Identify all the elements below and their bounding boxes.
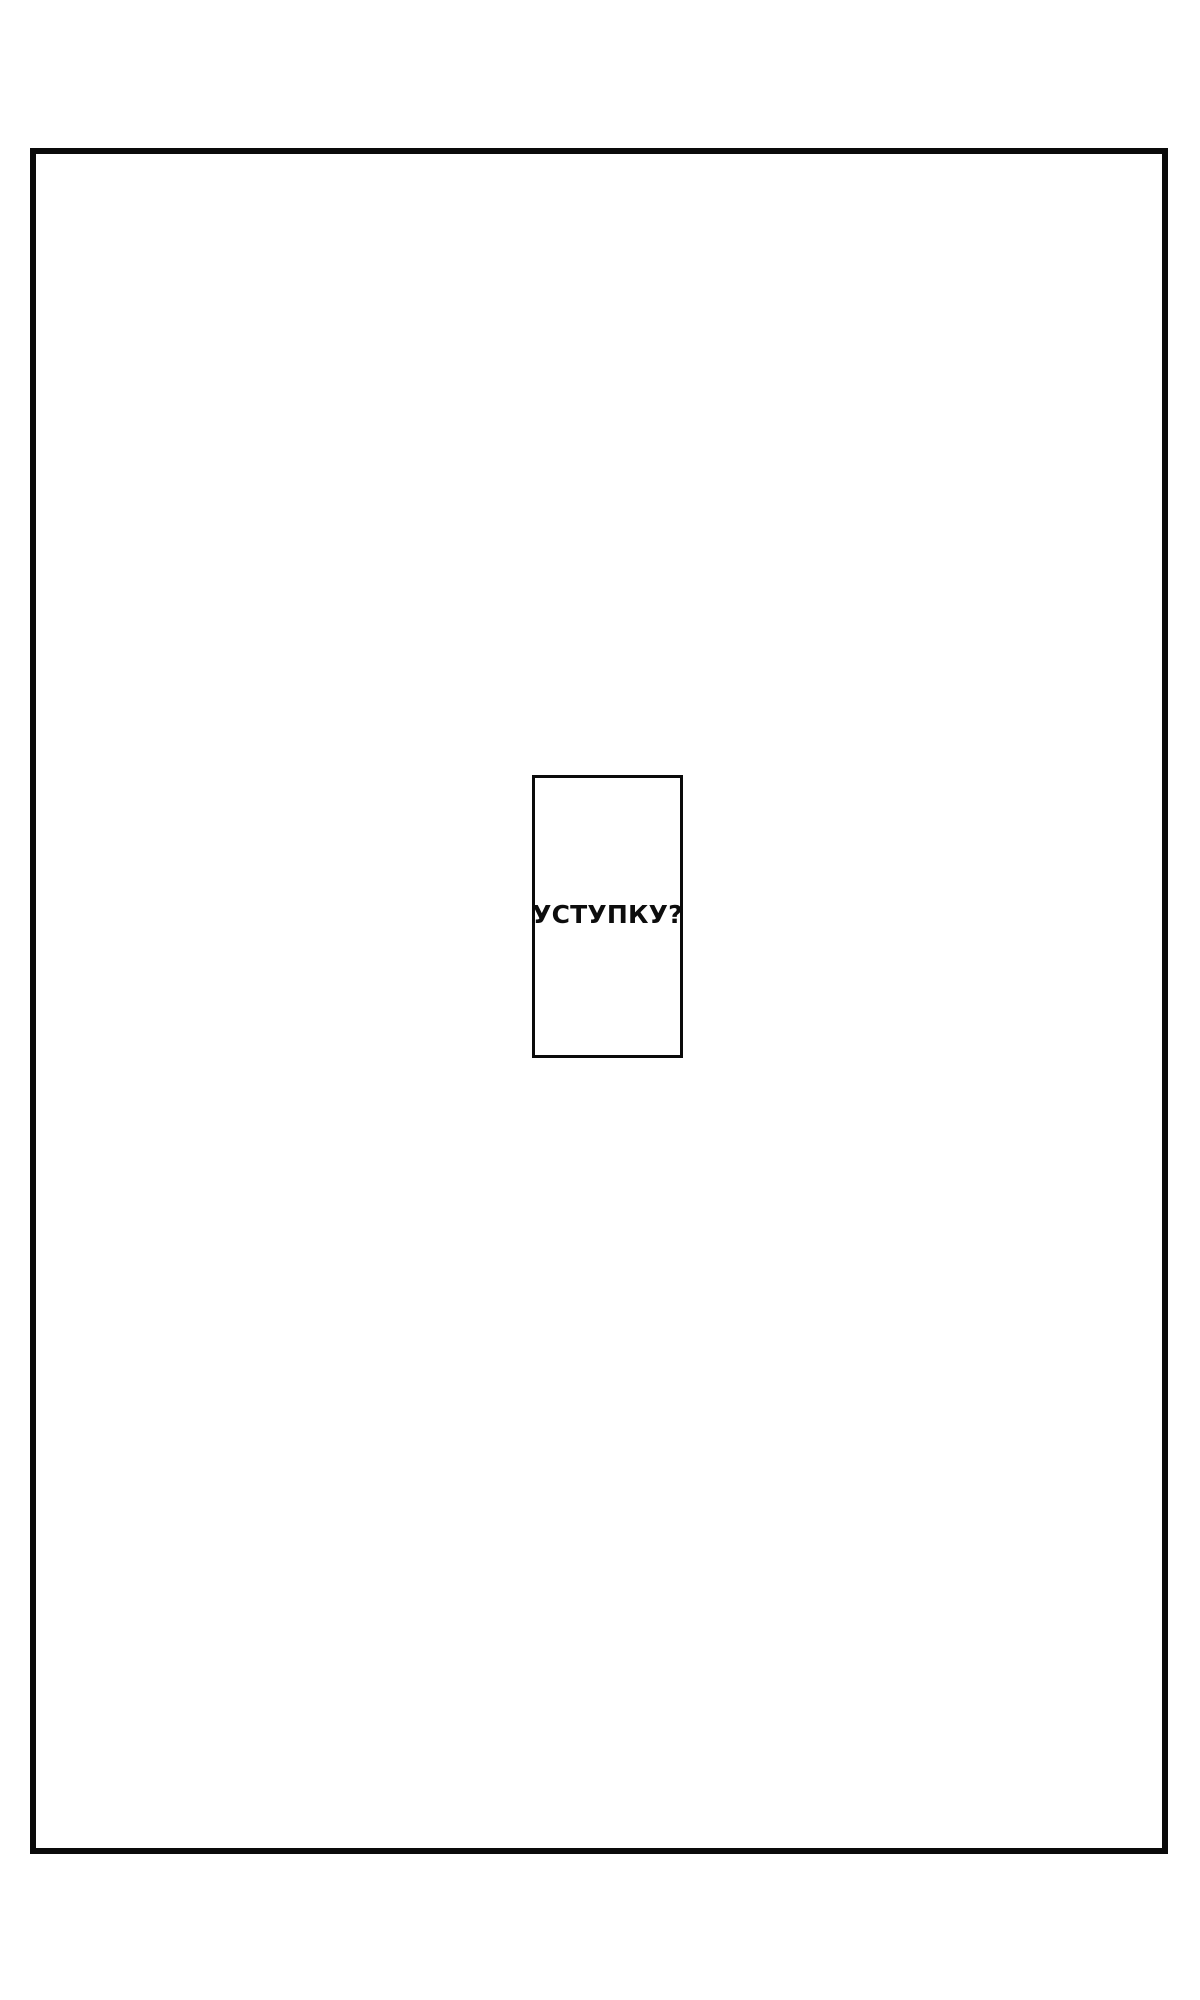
panel-frame: УСТУПКУ? bbox=[30, 148, 1168, 1854]
comic-page: УСТУПКУ? bbox=[0, 0, 1200, 2000]
caption-text: УСТУПКУ? bbox=[532, 902, 683, 927]
caption-box: УСТУПКУ? bbox=[532, 775, 683, 1058]
